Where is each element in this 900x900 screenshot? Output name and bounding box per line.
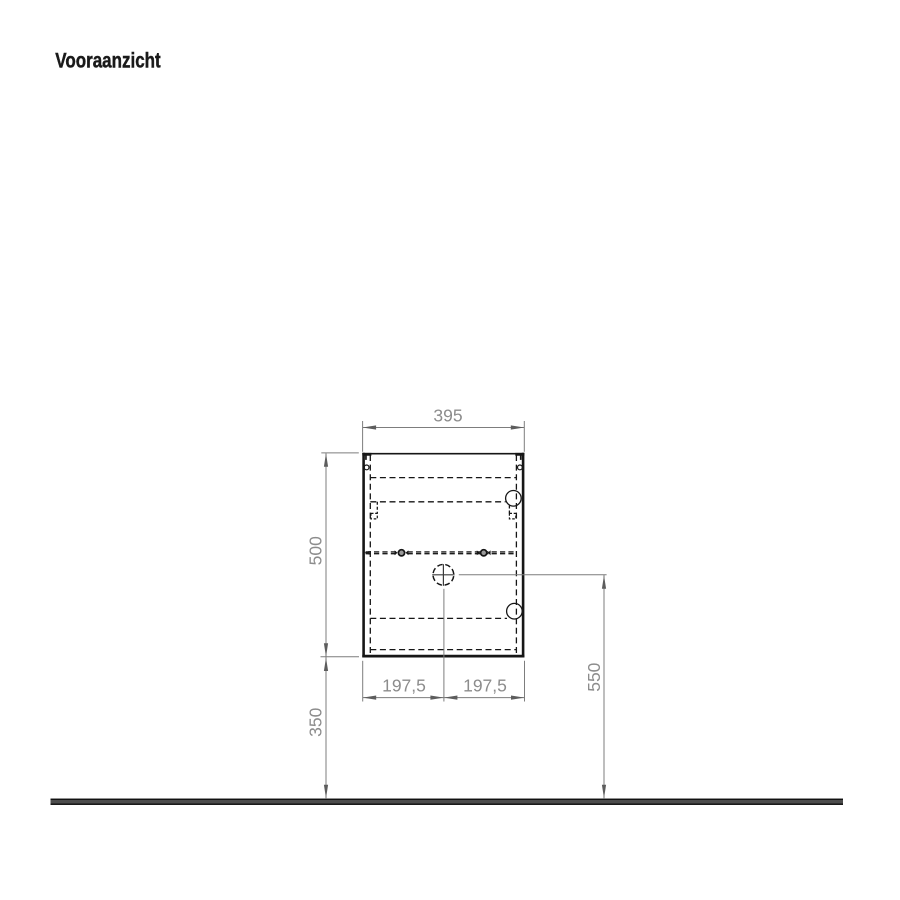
svg-text:197,5: 197,5 (463, 676, 507, 696)
svg-text:550: 550 (584, 662, 604, 691)
svg-text:350: 350 (306, 707, 326, 736)
svg-text:395: 395 (433, 405, 462, 425)
svg-text:197,5: 197,5 (382, 676, 426, 696)
svg-text:500: 500 (306, 536, 326, 565)
svg-text:Vooraanzicht: Vooraanzicht (55, 50, 161, 73)
